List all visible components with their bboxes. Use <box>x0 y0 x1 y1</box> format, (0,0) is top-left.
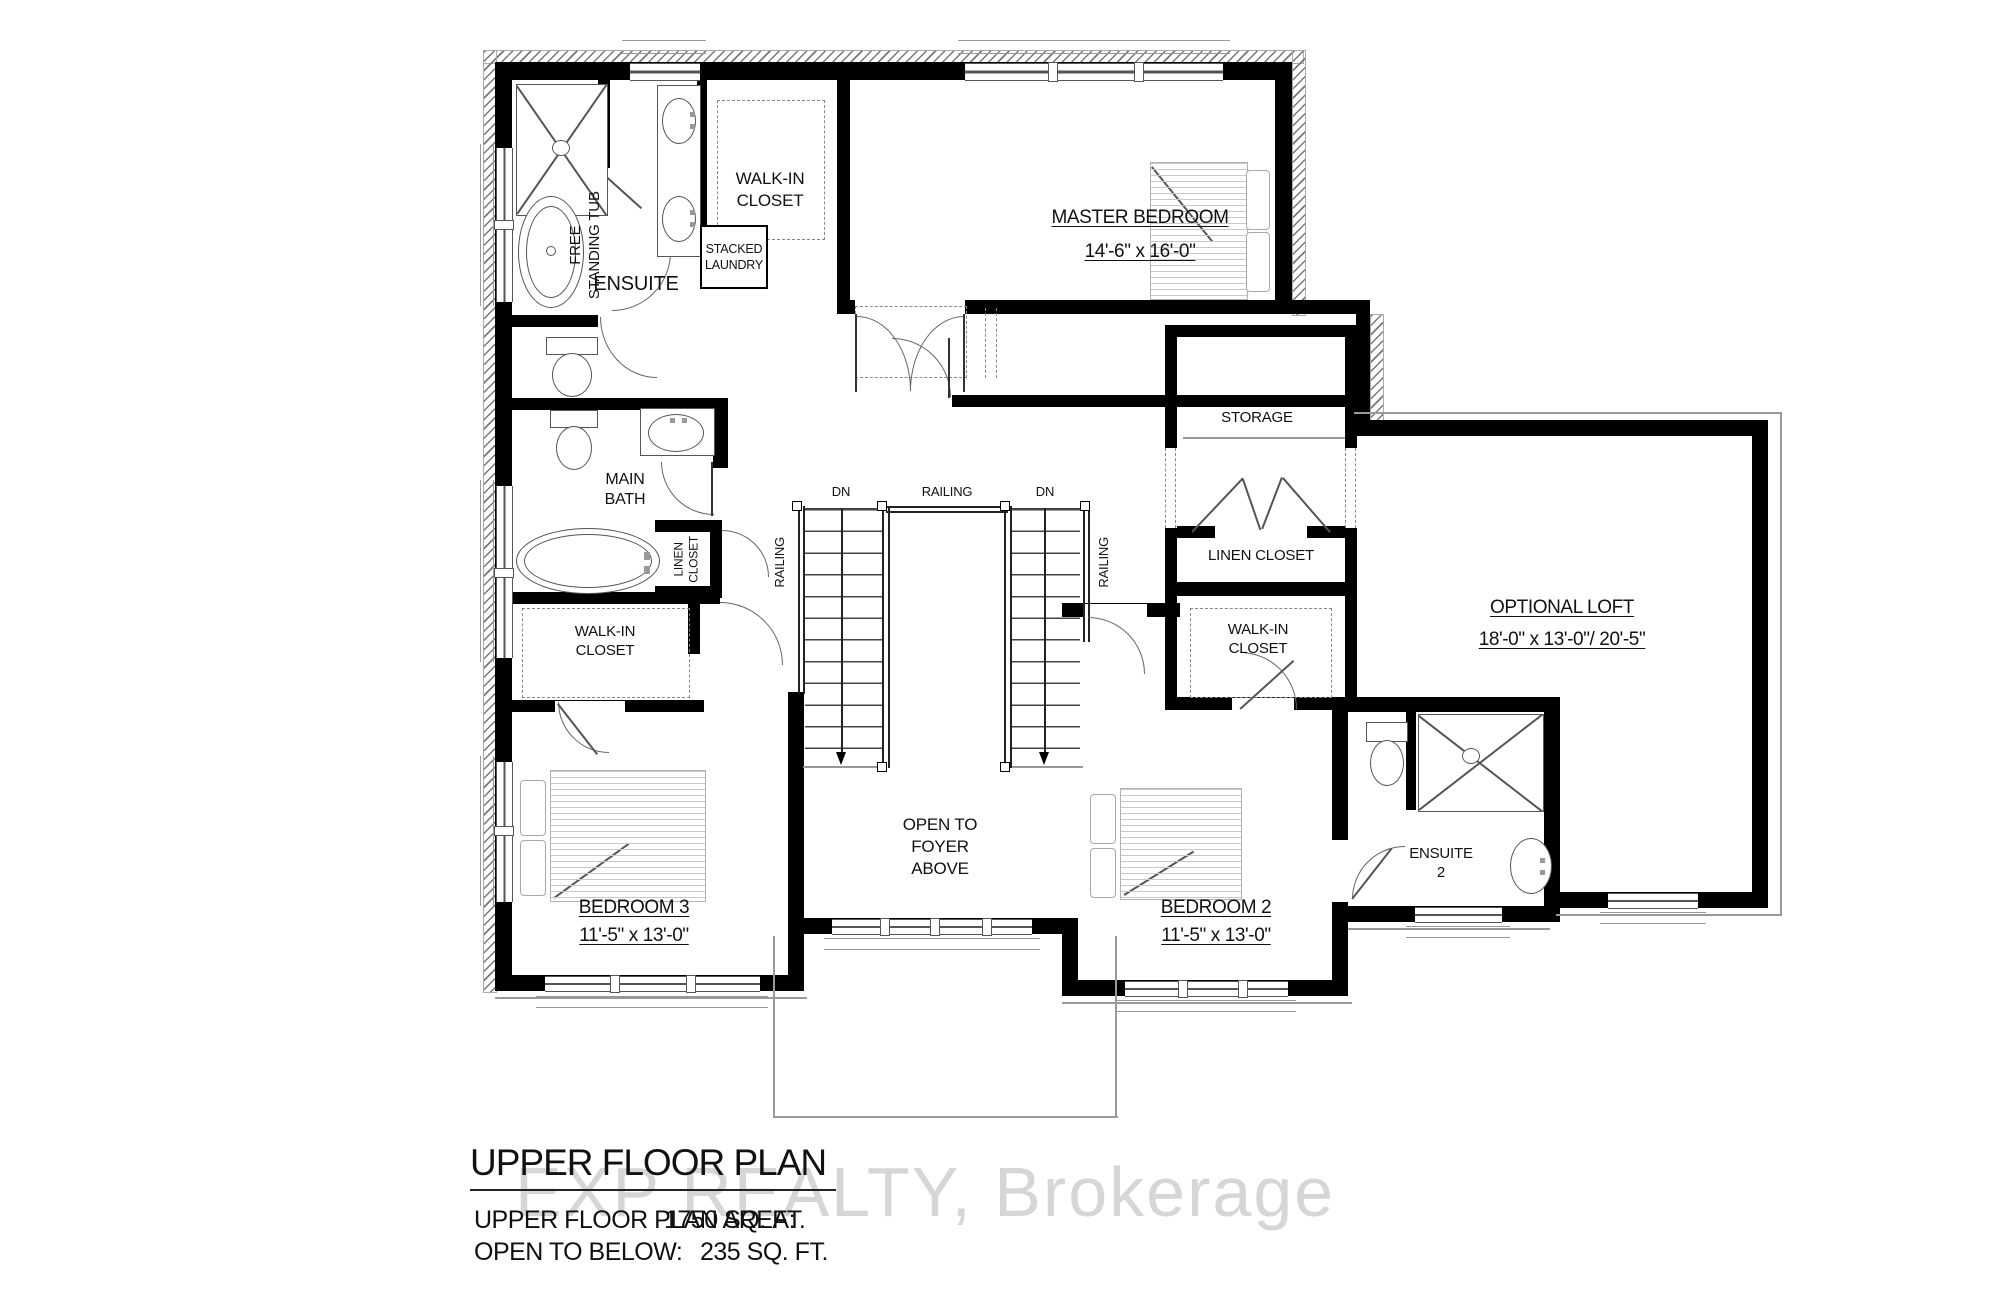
bed-pillow <box>1246 170 1270 230</box>
bifold-door <box>1282 477 1330 532</box>
wall <box>1275 62 1292 314</box>
stacked-laundry-unit: STACKED LAUNDRY <box>700 225 768 289</box>
window-sill <box>622 40 706 54</box>
dn-label-left: DN <box>826 484 856 501</box>
shower-drain <box>1462 748 1480 764</box>
toilet-bowl <box>552 353 592 397</box>
window-mullion <box>686 975 696 993</box>
door-swing-arc <box>600 317 657 378</box>
outline-line <box>773 936 775 1118</box>
faucet-dot <box>690 210 695 215</box>
window-mullion <box>610 975 620 993</box>
room-label-linen-closet-left: LINEN CLOSET <box>652 518 722 600</box>
stair-railing <box>798 506 800 694</box>
master-bedroom-dimensions: 14'-6" x 16'-0" <box>1040 240 1240 264</box>
room-label-main-bath: MAIN BATH <box>585 470 665 511</box>
faucet-dot <box>690 124 695 129</box>
linen-closet-left-text: LINEN CLOSET <box>672 524 703 594</box>
dashed-opening <box>1345 448 1348 528</box>
stair-direction-line <box>841 508 843 756</box>
down-arrow <box>1039 752 1049 765</box>
tub-drain <box>546 246 556 256</box>
stair-run-left <box>805 508 882 769</box>
window <box>1415 907 1502 923</box>
wall <box>1544 712 1560 922</box>
outline-line <box>1115 936 1117 1118</box>
wall <box>1169 395 1357 407</box>
outline-line <box>1183 437 1345 439</box>
wall <box>1177 325 1357 337</box>
bifold-door <box>1261 477 1282 529</box>
wall <box>1354 420 1768 436</box>
stair-railing <box>1004 506 1006 768</box>
wall <box>1165 582 1357 596</box>
stair-run-right <box>1012 508 1080 769</box>
exterior-wall-hatch <box>1370 314 1384 428</box>
room-label-master-bedroom: MASTER BEDROOM <box>1040 206 1240 230</box>
dashed-opening <box>1175 448 1178 528</box>
bed-mattress <box>1120 788 1242 900</box>
railing-label-right: RAILING <box>1092 520 1116 604</box>
railing-label-top: RAILING <box>900 484 994 501</box>
stair-railing <box>1083 506 1085 642</box>
room-label-linen-closet-right: LINEN CLOSET <box>1191 546 1331 565</box>
door-opening <box>1332 840 1348 902</box>
window-sill <box>824 938 1040 950</box>
door-leaf <box>855 314 857 392</box>
railing-post <box>1000 501 1010 511</box>
room-label-ensuite-2: ENSUITE 2 <box>1396 844 1486 882</box>
sink-basin <box>1510 838 1552 894</box>
outline-line <box>1062 1002 1352 1004</box>
stair-railing <box>888 506 890 768</box>
window-mullion <box>1048 62 1058 82</box>
window <box>630 63 700 81</box>
sink-basin <box>662 98 696 144</box>
window-mullion <box>982 918 992 936</box>
window-mullion <box>880 918 890 936</box>
bedroom-2-dimensions: 11'-5" x 13'-0" <box>1116 924 1316 948</box>
door-swing-arc <box>661 462 714 515</box>
window-mullion <box>494 826 514 836</box>
stair-railing <box>882 506 884 768</box>
bed-pillow <box>520 780 546 836</box>
wall <box>1752 420 1768 908</box>
faucet-dot <box>1540 858 1545 863</box>
bed-pillow <box>1246 232 1270 292</box>
wall <box>713 410 728 468</box>
stacked-laundry-text: STACKED LAUNDRY <box>705 241 763 273</box>
window-mullion <box>494 568 514 578</box>
window-sill <box>480 480 494 662</box>
faucet-dot <box>1540 870 1545 875</box>
room-label-walk-in-closet-left: WALK-IN CLOSET <box>545 622 665 660</box>
railing-post <box>877 762 887 772</box>
window-mullion <box>930 918 940 936</box>
railing-post <box>877 501 887 511</box>
railing-label-left: RAILING <box>768 520 792 604</box>
dashed-opening <box>996 308 999 378</box>
toilet-bowl <box>1370 740 1404 786</box>
window-mullion <box>494 220 514 230</box>
outline-line <box>1348 928 1550 930</box>
stair-railing <box>803 506 805 694</box>
door-swing-arc <box>1088 617 1145 674</box>
door-leaf <box>948 338 950 398</box>
outline-line <box>773 1116 1118 1118</box>
wall <box>788 692 804 991</box>
window-sill <box>958 40 1230 54</box>
faucet-dot <box>682 418 687 423</box>
room-label-optional-loft: OPTIONAL LOFT <box>1462 596 1662 620</box>
dashed-opening <box>985 308 988 378</box>
stair-direction-line <box>1044 508 1046 756</box>
faucet-dot <box>690 222 695 227</box>
exterior-wall-hatch <box>1292 50 1306 316</box>
stair-railing <box>1010 506 1012 768</box>
shower-drain <box>552 140 570 156</box>
railing-post <box>792 501 802 511</box>
label-open-to-foyer-above: OPEN TO FOYER ABOVE <box>870 814 1010 879</box>
shower-pan <box>1418 714 1544 812</box>
dashed-opening <box>1165 448 1168 528</box>
room-label-walk-in-closet-right: WALK-IN CLOSET <box>1198 620 1318 658</box>
door-swing-arc <box>720 602 783 665</box>
area-value: 1750 SQ. FT. <box>664 1206 805 1235</box>
wall <box>1332 697 1560 712</box>
railing-left-text: RAILING <box>772 537 789 588</box>
bed-mattress <box>1150 162 1248 300</box>
window-mullion <box>1238 980 1248 998</box>
window-mullion <box>1178 980 1188 998</box>
floor-plan-page: ENSUITE FREE STANDING TUB WALK-IN CLOSET… <box>0 0 2000 1294</box>
toilet-bowl <box>556 426 592 470</box>
open-below-label: OPEN TO BELOW: <box>474 1238 682 1267</box>
toilet-tank <box>1366 722 1408 742</box>
plan-title: UPPER FLOOR PLAN <box>470 1142 836 1191</box>
faucet-dot <box>670 418 675 423</box>
shower-glass-line <box>1419 715 1544 812</box>
bed-pillow <box>520 840 546 896</box>
bedroom-3-dimensions: 11'-5" x 13'-0" <box>534 924 734 948</box>
window-mullion <box>1134 62 1144 82</box>
window <box>1125 981 1288 997</box>
window <box>1608 893 1698 909</box>
free-standing-tub-text: FREE STANDING TUB <box>566 180 604 310</box>
window-sill <box>480 144 494 306</box>
faucet-dot <box>690 112 695 117</box>
room-label-bedroom-2: BEDROOM 2 <box>1116 896 1316 920</box>
outline-line <box>495 997 807 999</box>
main-bath-tub-inner <box>524 534 652 588</box>
bed-mattress <box>550 770 706 902</box>
bifold-door <box>1242 479 1261 531</box>
stair-railing <box>886 506 1008 508</box>
railing-right-text: RAILING <box>1096 537 1113 588</box>
stair-railing <box>886 511 1008 513</box>
railing-post <box>1080 501 1090 511</box>
wall <box>952 395 1169 407</box>
dn-label-right: DN <box>1030 484 1060 501</box>
door-leaf <box>963 314 965 392</box>
door-leaf <box>711 462 713 516</box>
outline-line <box>1556 914 1782 916</box>
window <box>545 976 760 992</box>
window-sill <box>480 756 494 906</box>
tub-faucet <box>644 566 650 574</box>
sink-basin <box>648 414 704 452</box>
window <box>965 63 1223 81</box>
down-arrow <box>836 752 846 765</box>
dashed-opening <box>1355 448 1358 528</box>
sink-basin <box>662 196 696 242</box>
bed-pillow <box>1090 848 1116 898</box>
wall <box>1356 314 1370 436</box>
wall <box>837 80 850 314</box>
door-swing-arc <box>558 702 609 753</box>
room-label-walk-in-closet-master: WALK-IN CLOSET <box>710 168 830 212</box>
door-opening <box>1085 604 1147 617</box>
tub-faucet <box>644 552 650 560</box>
bifold-door <box>1191 477 1243 532</box>
railing-post <box>1000 762 1010 772</box>
wall <box>512 315 598 327</box>
outline-line <box>1780 412 1782 916</box>
bed-pillow <box>1090 794 1116 844</box>
optional-loft-dimensions: 18'-0" x 13'-0"/ 20'-5" <box>1442 628 1682 652</box>
open-below-value: 235 SQ. FT. <box>700 1238 828 1267</box>
door-swing-arc <box>722 530 769 577</box>
room-label-storage: STORAGE <box>1197 408 1317 427</box>
outline-line <box>1354 412 1782 414</box>
room-label-bedroom-3: BEDROOM 3 <box>534 896 734 920</box>
